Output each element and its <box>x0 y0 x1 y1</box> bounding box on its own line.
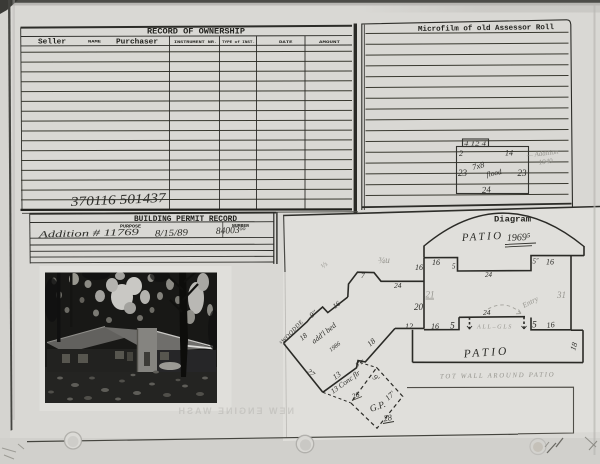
svg-text:16: 16 <box>546 258 554 267</box>
svg-text:24: 24 <box>485 271 493 279</box>
svg-text:2: 2 <box>459 149 463 158</box>
svg-text:16: 16 <box>415 263 423 272</box>
svg-text:16: 16 <box>431 322 439 331</box>
svg-text:12: 12 <box>405 322 413 331</box>
svg-text:INSTRUMENT NR.: INSTRUMENT NR. <box>174 41 217 45</box>
svg-text:5˝: 5˝ <box>533 258 540 266</box>
svg-text:24: 24 <box>481 184 491 195</box>
svg-text:RECORD OF OWNERSHIP: RECORD OF OWNERSHIP <box>147 27 245 37</box>
svg-text:NAME: NAME <box>88 41 102 45</box>
svg-text:AMOUNT: AMOUNT <box>319 41 341 45</box>
svg-text:23: 23 <box>518 168 528 178</box>
svg-text:5: 5 <box>450 322 455 332</box>
svg-text:¾u: ¾u <box>378 255 390 266</box>
svg-text:NEW ENGINE WASH: NEW ENGINE WASH <box>176 406 294 416</box>
svg-text:5: 5 <box>532 321 537 331</box>
svg-text:31: 31 <box>556 290 566 300</box>
svg-text:24: 24 <box>394 281 402 290</box>
svg-text:8/15/89: 8/15/89 <box>155 228 189 239</box>
svg-text:20: 20 <box>414 302 424 312</box>
svg-text:24: 24 <box>483 308 491 317</box>
svg-text:DATE: DATE <box>279 41 293 45</box>
svg-text:ALL–GLS: ALL–GLS <box>476 324 513 331</box>
svg-text:Purchaser: Purchaser <box>116 39 158 47</box>
svg-text:BUILDING PERMIT RECORD: BUILDING PERMIT RECORD <box>134 216 237 224</box>
svg-text:1969⁵: 1969⁵ <box>507 232 532 244</box>
svg-text:TYPE of INST.: TYPE of INST. <box>222 40 255 45</box>
svg-text:5: 5 <box>452 263 456 271</box>
svg-text:23: 23 <box>458 168 468 178</box>
svg-text:PATIO: PATIO <box>461 230 504 244</box>
svg-text:Seller: Seller <box>38 39 66 47</box>
svg-text:16: 16 <box>546 320 555 330</box>
svg-text:16: 16 <box>432 258 440 267</box>
svg-text:21: 21 <box>426 290 435 300</box>
svg-text:4 12 4: 4 12 4 <box>464 141 486 148</box>
svg-text:7: 7 <box>361 271 365 280</box>
svg-text:14: 14 <box>505 149 513 158</box>
